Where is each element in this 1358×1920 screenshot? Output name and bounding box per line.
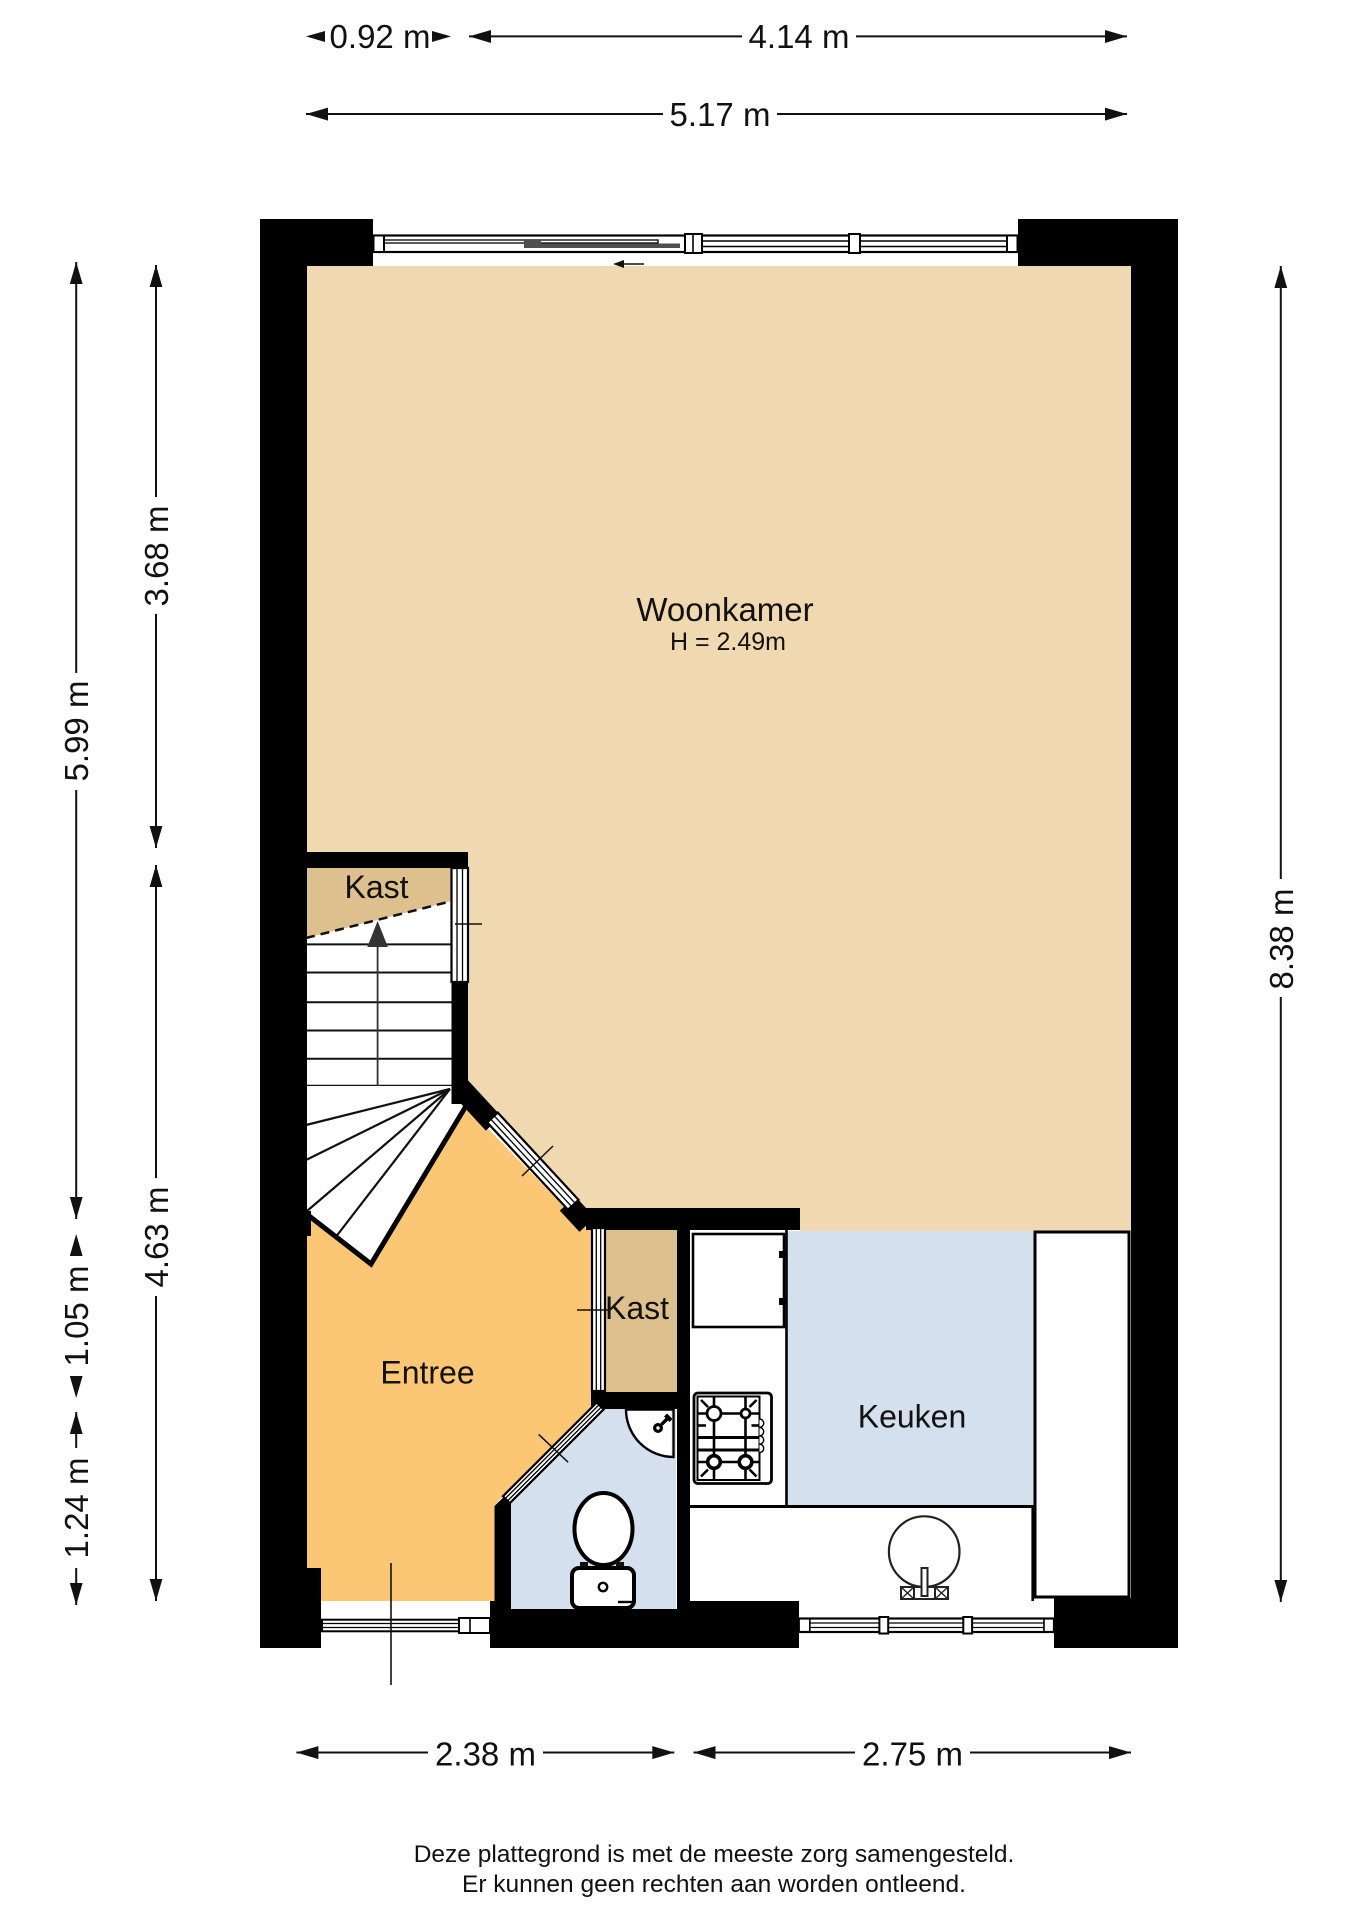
svg-text:5.99 m: 5.99 m bbox=[58, 681, 95, 782]
svg-text:Deze plattegrond is met de mee: Deze plattegrond is met de meeste zorg s… bbox=[414, 1841, 1015, 1868]
svg-text:Kast: Kast bbox=[605, 1290, 669, 1326]
svg-text:Kast: Kast bbox=[344, 869, 408, 905]
svg-text:4.63 m: 4.63 m bbox=[138, 1187, 175, 1288]
svg-text:H = 2.49m: H = 2.49m bbox=[670, 628, 786, 656]
svg-text:3.68 m: 3.68 m bbox=[138, 506, 175, 607]
svg-text:1.05 m: 1.05 m bbox=[58, 1266, 95, 1367]
svg-text:2.75 m: 2.75 m bbox=[862, 1736, 963, 1773]
svg-text:Er kunnen geen rechten aan wor: Er kunnen geen rechten aan worden ontlee… bbox=[462, 1871, 966, 1898]
svg-text:Keuken: Keuken bbox=[858, 1399, 967, 1435]
svg-text:8.38 m: 8.38 m bbox=[1263, 889, 1300, 990]
svg-text:4.14 m: 4.14 m bbox=[749, 18, 850, 55]
svg-text:0.92 m: 0.92 m bbox=[330, 18, 431, 55]
svg-text:5.17 m: 5.17 m bbox=[670, 96, 771, 133]
svg-text:Entree: Entree bbox=[380, 1355, 474, 1391]
svg-text:Woonkamer: Woonkamer bbox=[636, 591, 813, 628]
svg-text:2.38 m: 2.38 m bbox=[435, 1736, 536, 1773]
svg-text:1.24 m: 1.24 m bbox=[58, 1458, 95, 1559]
